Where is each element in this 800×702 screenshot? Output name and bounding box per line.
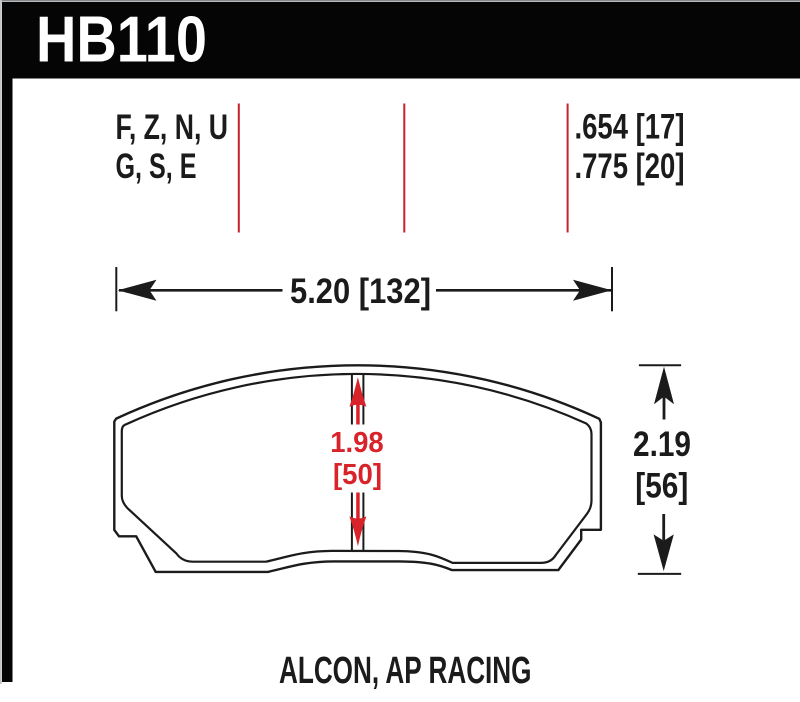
svg-text:ALCON, AP RACING: ALCON, AP RACING	[279, 650, 532, 692]
svg-text:[56]: [56]	[635, 467, 688, 506]
svg-text:1.98: 1.98	[330, 427, 384, 459]
svg-text:2.19: 2.19	[633, 425, 691, 464]
svg-text:5.20 [132]: 5.20 [132]	[290, 272, 431, 311]
svg-text:.654 [17]: .654 [17]	[575, 107, 685, 146]
svg-text:HB110: HB110	[36, 4, 207, 76]
svg-text:F, Z, N, U: F, Z, N, U	[116, 108, 229, 147]
svg-text:G, S, E: G, S, E	[116, 147, 197, 186]
svg-text:.775 [20]: .775 [20]	[575, 147, 685, 186]
svg-text:[50]: [50]	[333, 459, 382, 491]
